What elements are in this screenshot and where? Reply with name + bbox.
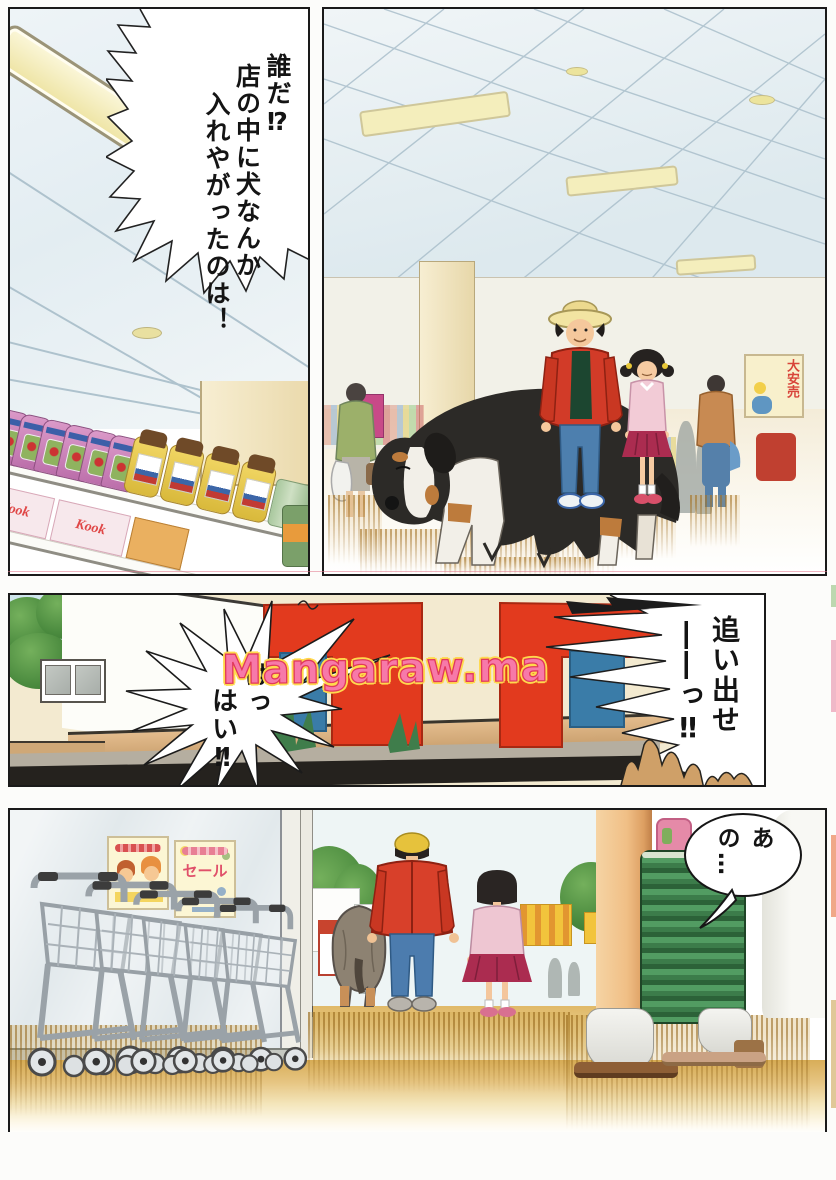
jacket-arm (540, 357, 558, 421)
page-edge-sliver (831, 640, 836, 712)
product-box-label: Kook (8, 499, 31, 520)
shout-text: 誰だ⁉ 店の中に犬なんか 入れやがったのは！ (201, 53, 293, 334)
shout-text-oidase: 追い出せ ――っ‼ (669, 615, 742, 746)
shoe (388, 997, 412, 1011)
shout-line: 店の中に犬なんか (231, 63, 262, 334)
pedestrian-silhouette (548, 958, 562, 998)
speech-bubble: あの… (684, 813, 802, 897)
man-back (362, 830, 462, 1014)
poster-art (752, 396, 772, 414)
wall-poster: 大安売 (744, 354, 804, 418)
sneaker (580, 494, 604, 508)
girl-leg (640, 457, 645, 489)
poster-headline (182, 847, 228, 855)
girl-sock (485, 1000, 493, 1008)
sneaker (558, 494, 582, 508)
shelf-display (756, 433, 796, 481)
panel-entrance: セール (8, 808, 827, 1132)
hand (367, 933, 377, 943)
girl (616, 347, 678, 511)
sandal (662, 1052, 766, 1066)
girl-sock (648, 485, 655, 494)
round-ceiling-light (132, 327, 162, 339)
girl-ribbon (662, 363, 668, 369)
shout-line: 追い出せ (706, 615, 742, 746)
shopper-woman-orange (690, 373, 742, 509)
girl-shoe (646, 494, 662, 504)
shout-line: 誰だ⁉ (262, 53, 293, 334)
girl-sock (639, 485, 646, 494)
shirt-green (570, 351, 592, 419)
shout-line: 入れやがったのは！ (201, 91, 232, 334)
girl-shoe (480, 1007, 498, 1017)
sign-blue-right (570, 651, 624, 727)
dog-nose (385, 496, 399, 510)
man-straw-hat (534, 297, 626, 529)
dog-back-leg (340, 986, 349, 1006)
poster-headline (115, 844, 161, 852)
jeans (560, 425, 600, 493)
dog-foreleg-tan (448, 503, 472, 523)
girl-ribbon (626, 363, 632, 369)
panel-ceiling-shout: 誰だ⁉ 店の中に犬なんか 入れやがったのは！ (8, 7, 310, 576)
shout-line: ――っ‼ (669, 621, 705, 746)
girl-leg (649, 457, 654, 489)
scan-artifact-line (8, 571, 827, 572)
round-ceiling-light (566, 67, 588, 76)
product-box-label: Kook (74, 517, 107, 538)
floor-streaks (308, 1012, 570, 1096)
watermark: Mangaraw.ma (222, 645, 549, 694)
page-edge-sliver (831, 585, 836, 607)
manga-page: 誰だ⁉ 店の中に犬なんか 入れやがったのは！ (0, 0, 836, 1180)
panel-store-interior: 大安売 (322, 7, 827, 576)
girl-sock (501, 1000, 509, 1008)
girl-cardigan-back (470, 906, 524, 959)
white-sock (586, 1008, 654, 1070)
girl-face (637, 361, 657, 381)
round-ceiling-light (749, 95, 775, 105)
hand (449, 933, 459, 943)
product-canister (282, 505, 310, 567)
girl-back (462, 868, 532, 1018)
poster-star (754, 382, 766, 394)
face (566, 319, 594, 347)
girl-hair-back (477, 870, 517, 905)
dog-brow-tan (392, 452, 408, 462)
wall-poster-text: 大安売 (784, 359, 798, 398)
dog-cheek-tan (425, 485, 439, 505)
page-edge-sliver (831, 1000, 836, 1108)
product-box: Kook (8, 482, 55, 540)
sandal (574, 1062, 678, 1078)
reply-line: はい‼ (206, 687, 239, 775)
floor-shadow (690, 495, 740, 549)
speech-text: あの… (709, 826, 777, 895)
speech-bubble-tail (698, 888, 738, 932)
jeans-back (390, 934, 434, 996)
dog-hindleg (636, 515, 656, 559)
page-edge-sliver (831, 835, 836, 917)
hand (541, 422, 551, 432)
pedestrian-silhouette (568, 962, 580, 996)
shoe (412, 997, 436, 1011)
girl-shoe (498, 1007, 516, 1017)
shopping-cart (199, 901, 322, 1077)
